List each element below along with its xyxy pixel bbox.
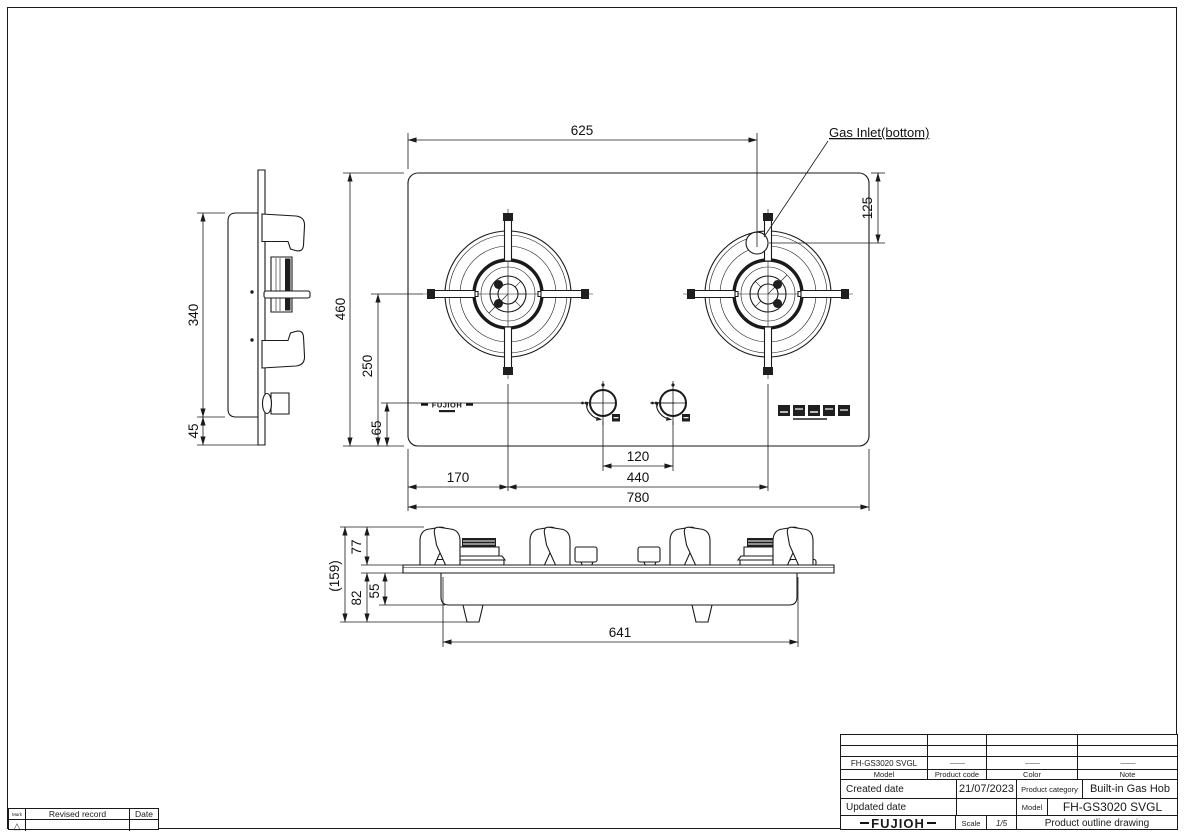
tb-drawing-title: Product outline drawing bbox=[1017, 816, 1177, 830]
front-glass-panel bbox=[403, 565, 834, 573]
tb-scale-value: 1/5 bbox=[987, 816, 1017, 830]
revision-table: Mark Revised record Date △ bbox=[8, 808, 159, 830]
svg-text:780: 780 bbox=[627, 490, 650, 505]
brand-logo: FUJIOH bbox=[860, 816, 936, 830]
tb-model-label: Model bbox=[841, 770, 928, 779]
tb-product-code-value: —— bbox=[928, 757, 987, 769]
tb-empty-cell bbox=[928, 735, 987, 745]
svg-text:45: 45 bbox=[186, 423, 201, 438]
front-burner-left bbox=[453, 538, 505, 560]
tb-color-value: —— bbox=[987, 757, 1078, 769]
panel-logo-text: FUJIOH bbox=[432, 401, 463, 410]
svg-text:460: 460 bbox=[333, 298, 348, 321]
svg-text:340: 340 bbox=[186, 304, 201, 327]
front-view: (159) 77 82 55 641 bbox=[327, 527, 834, 647]
svg-text:65: 65 bbox=[369, 420, 384, 435]
tb-created-date-value: 21/07/2023 bbox=[957, 780, 1017, 798]
svg-text:55: 55 bbox=[367, 583, 382, 598]
rev-date-header: Date bbox=[130, 809, 158, 819]
top-view: FUJIOH Gas Inlet(bottom) bbox=[333, 123, 929, 511]
rev-record-empty bbox=[26, 820, 130, 831]
tb-empty-cell bbox=[841, 735, 928, 745]
side-burner-stack bbox=[264, 257, 310, 312]
tb-product-category-label: Product category bbox=[1017, 780, 1083, 798]
svg-text:77: 77 bbox=[349, 539, 364, 554]
tb-note-value: —— bbox=[1078, 757, 1177, 769]
svg-text:120: 120 bbox=[627, 449, 650, 464]
svg-text:82: 82 bbox=[349, 590, 364, 605]
tb-empty-cell bbox=[987, 735, 1078, 745]
dim-460: 460 bbox=[333, 173, 404, 446]
dim-77: 77 bbox=[349, 527, 403, 565]
tb-empty-cell bbox=[1078, 746, 1177, 756]
tb-color-label: Color bbox=[987, 770, 1078, 779]
tb-model-value: FH-GS3020 SVGL bbox=[841, 757, 928, 769]
svg-text:250: 250 bbox=[360, 355, 375, 378]
svg-text:440: 440 bbox=[627, 470, 650, 485]
dim-45: 45 bbox=[186, 417, 262, 445]
side-body bbox=[228, 213, 258, 417]
tb-empty-cell bbox=[841, 746, 928, 756]
svg-text:625: 625 bbox=[571, 123, 594, 138]
tb-brand-cell: FUJIOH bbox=[841, 816, 956, 830]
tb-model2-value: FH-GS3020 SVGL bbox=[1048, 799, 1177, 815]
title-block: FH-GS3020 SVGL —— —— —— Model Product co… bbox=[840, 734, 1178, 830]
svg-text:(159): (159) bbox=[327, 560, 342, 592]
svg-text:125: 125 bbox=[860, 197, 875, 220]
dim-340: 340 bbox=[186, 213, 225, 417]
tb-product-code-label: Product code bbox=[928, 770, 987, 779]
front-foot-right bbox=[692, 605, 712, 622]
front-body bbox=[441, 573, 797, 605]
tb-product-category-value: Built-in Gas Hob bbox=[1083, 780, 1177, 798]
gas-inlet-label: Gas Inlet(bottom) bbox=[829, 125, 929, 140]
tb-updated-date-label: Updated date bbox=[841, 799, 957, 815]
tb-empty-cell bbox=[928, 746, 987, 756]
svg-text:641: 641 bbox=[609, 625, 632, 640]
front-foot-left bbox=[463, 605, 483, 622]
technical-drawing: FUJIOH Gas Inlet(bottom) bbox=[0, 0, 1185, 835]
drawing-sheet: FUJIOH Gas Inlet(bottom) bbox=[0, 0, 1185, 835]
side-knob bbox=[263, 393, 290, 414]
tb-updated-date-value bbox=[957, 799, 1017, 815]
rev-mark-symbol: △ bbox=[9, 820, 26, 831]
tb-empty-cell bbox=[987, 746, 1078, 756]
tb-scale-label: Scale bbox=[956, 816, 987, 830]
rev-mark-header: Mark bbox=[9, 809, 26, 819]
svg-text:170: 170 bbox=[447, 470, 470, 485]
side-view: 340 45 bbox=[186, 170, 310, 445]
rev-record-header: Revised record bbox=[26, 809, 130, 819]
tb-note-label: Note bbox=[1078, 770, 1177, 779]
dim-55: 55 bbox=[367, 573, 445, 605]
tb-created-date-label: Created date bbox=[841, 780, 957, 798]
tb-model2-label: Model bbox=[1017, 799, 1048, 815]
tb-empty-cell bbox=[1078, 735, 1177, 745]
rev-date-empty bbox=[130, 820, 158, 831]
